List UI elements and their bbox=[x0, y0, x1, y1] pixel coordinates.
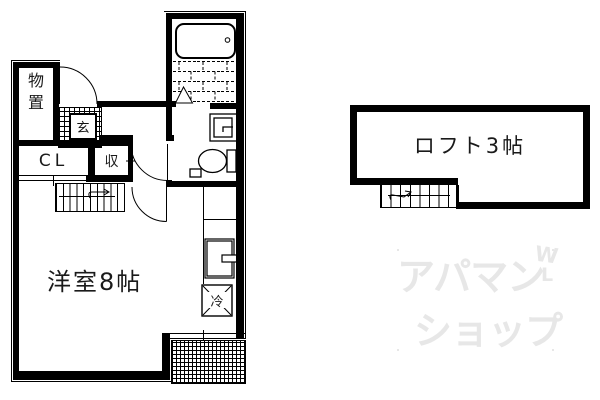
wall-bath-left bbox=[166, 13, 172, 107]
outline-bottom bbox=[11, 381, 171, 382]
balcony-outline-bottom bbox=[171, 383, 246, 384]
loft-wall-bottom-right bbox=[456, 202, 590, 209]
loft-wall-left bbox=[350, 105, 357, 185]
wall-wc-left-upper bbox=[166, 107, 172, 136]
window-line-2 bbox=[170, 338, 245, 339]
wall-cabinet-bottom bbox=[86, 175, 133, 182]
closet-label: CL bbox=[19, 147, 88, 175]
window-line-1 bbox=[170, 333, 245, 334]
outline-top-left bbox=[11, 60, 60, 61]
outline-bath-top bbox=[164, 11, 246, 12]
watermark-dot bbox=[397, 349, 399, 351]
wall-kitchen-top bbox=[166, 181, 236, 187]
wall-closet-top bbox=[13, 140, 100, 146]
loft-ladder-arrow bbox=[390, 191, 411, 200]
loft-wall-right bbox=[583, 105, 590, 209]
wall-wc-stub bbox=[166, 135, 174, 141]
wall-storage-right bbox=[53, 67, 59, 146]
wall-hall-top bbox=[97, 101, 176, 107]
kitchen-counter-divider bbox=[203, 219, 236, 220]
kitchen-sink-icon bbox=[205, 239, 237, 278]
watermark-line2: ショップ bbox=[414, 300, 562, 355]
outline-right bbox=[245, 11, 246, 339]
western-room-label: 洋室8帖 bbox=[47, 262, 142, 297]
stair-arrow bbox=[89, 189, 109, 198]
hall-door-swing bbox=[131, 144, 168, 181]
loft-wall-top bbox=[350, 105, 590, 112]
entrance-label: 玄 bbox=[76, 117, 89, 136]
watermark-line1: アパマン bbox=[397, 246, 544, 301]
toilet-icon bbox=[190, 150, 236, 178]
wall-bottom-jog bbox=[162, 333, 170, 380]
watermark-dot bbox=[552, 249, 554, 251]
outline-left bbox=[11, 60, 12, 382]
closet-tick bbox=[53, 175, 54, 186]
loft-room-label: ロフト3帖 bbox=[357, 112, 583, 178]
bathtub-icon bbox=[176, 24, 235, 58]
storage-room-label: 物置 bbox=[27, 72, 46, 116]
watermark-dot bbox=[552, 349, 554, 351]
refrigerator-label: 冷 bbox=[208, 292, 226, 308]
entrance-door-swing bbox=[60, 67, 98, 104]
watermark-mark-bottom: L bbox=[541, 264, 552, 286]
balcony-outline-right bbox=[245, 340, 246, 383]
washbasin-icon bbox=[210, 114, 237, 141]
floor-plan: 物置 玄 CL 収 洋室8帖 冷 ロフト3帖 アパマン ショップ W L bbox=[0, 0, 600, 400]
loft-wall-jog bbox=[456, 185, 458, 203]
wall-bath-bottom bbox=[210, 103, 236, 109]
wall-left bbox=[13, 62, 19, 380]
entrance-label-box: 玄 bbox=[69, 113, 97, 140]
room-door-swing bbox=[132, 187, 167, 222]
loft-wall-bottom-left bbox=[350, 178, 458, 185]
wall-right bbox=[236, 13, 244, 338]
wall-bottom bbox=[13, 371, 170, 380]
window-tick bbox=[203, 330, 204, 341]
cabinet-label: 収 bbox=[95, 147, 128, 175]
wall-bath-top bbox=[166, 13, 244, 19]
kitchen-counter-edge bbox=[203, 187, 204, 284]
watermark-dot bbox=[397, 249, 399, 251]
